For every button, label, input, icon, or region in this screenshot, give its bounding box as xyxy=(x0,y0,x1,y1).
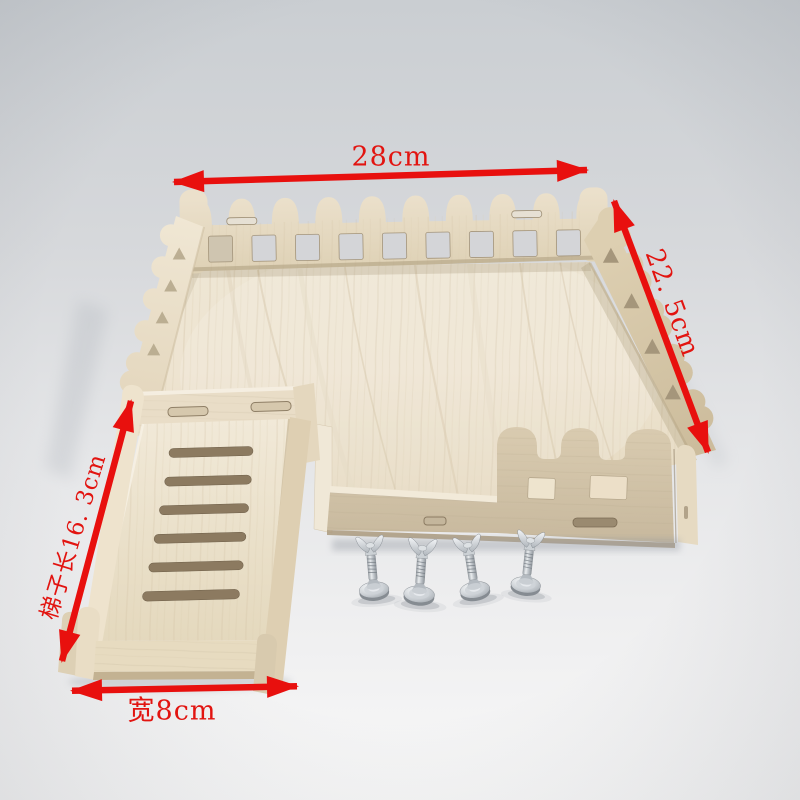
assembly-slot xyxy=(512,210,542,218)
product-photo: 28cm 22. 5cm 梯子长16. 3cm 宽8cm xyxy=(0,0,800,800)
dimension-label-top-width: 28cm xyxy=(351,142,430,173)
wall-window xyxy=(528,478,556,500)
assembly-slot xyxy=(424,517,446,525)
assembly-slot xyxy=(251,401,291,411)
platform-shadow xyxy=(332,539,680,551)
product-illustration xyxy=(0,0,800,800)
dimension-label-bottom-width: 宽8cm xyxy=(128,689,217,728)
assembly-slot xyxy=(168,406,208,416)
corner-edge-post xyxy=(676,445,698,545)
assembly-slot xyxy=(573,518,617,527)
assembly-slot xyxy=(227,217,257,225)
wall-window xyxy=(590,475,628,499)
